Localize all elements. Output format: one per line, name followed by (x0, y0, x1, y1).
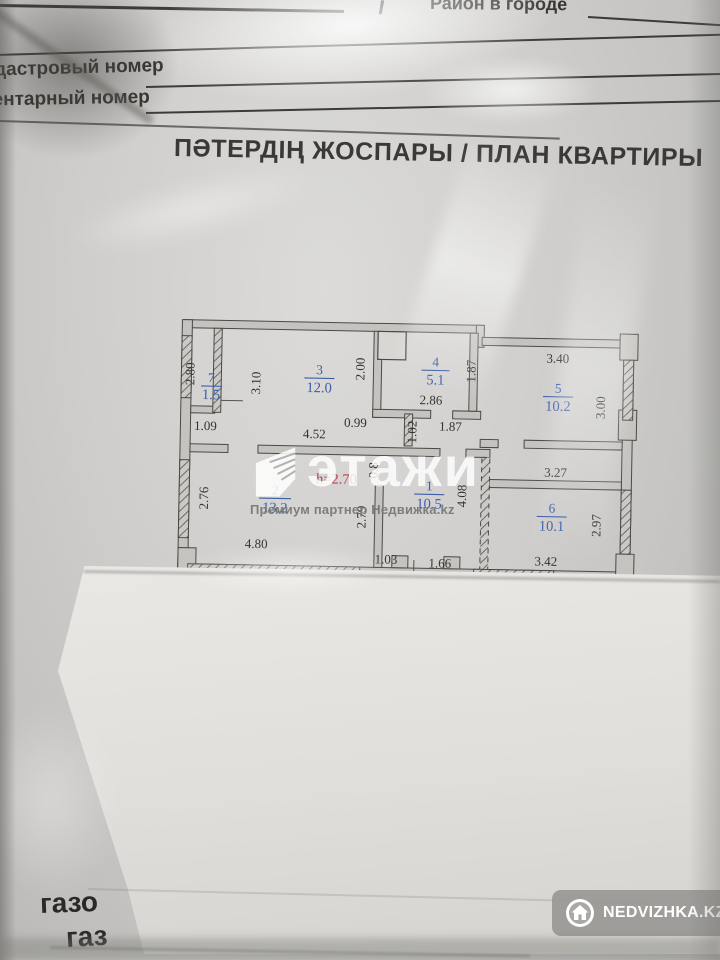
room-5-number: 5 (555, 381, 562, 396)
light-partition-dashed (480, 457, 490, 569)
inventory-field-line (146, 100, 720, 114)
watermark-brand-text: этажи (307, 443, 480, 491)
glare-streak-left (57, 149, 324, 270)
inventory-field-label: инвентарный номер (0, 87, 150, 112)
house-icon (565, 898, 595, 928)
dim-room2-width: 4.80 (245, 536, 268, 551)
etazhi-logo-icon (250, 443, 301, 499)
dim-room5-right: 3.00 (593, 396, 608, 419)
room-4-area: 5.1 (426, 372, 444, 388)
vent-shaft (378, 331, 407, 360)
dim-room7-width: 1.09 (194, 418, 217, 433)
room-6-number: 6 (548, 501, 555, 516)
room-3-number: 3 (316, 362, 323, 377)
room-7-number: 7 (208, 370, 215, 385)
dim-bottom-103: 1.03 (374, 551, 397, 566)
watermark-subtitle: Премиум партнер Недвижка.kz (250, 502, 480, 517)
etazhi-watermark: этажи Премиум партнер Недвижка.kz (250, 443, 480, 517)
district-field-label: Район в городе (430, 0, 567, 15)
dim-opening-099: 0.99 (344, 415, 367, 430)
badge-label: NEDVIZHKA.KZ (603, 904, 720, 922)
room-6-area: 10.1 (539, 518, 565, 534)
form-rule-top-tick (379, 0, 384, 14)
gas-form-text-line2: газ (65, 920, 108, 954)
district-field-line (588, 16, 720, 27)
room-5-area: 10.2 (545, 399, 571, 415)
dim-room4-height: 1.87 (463, 359, 478, 383)
dim-room3-left: 3.10 (248, 372, 263, 395)
dim-room7-height: 2.80 (182, 362, 197, 385)
room-7-area: 1.5 (202, 387, 220, 403)
dim-room2-left: 2.76 (196, 486, 211, 510)
dim-hall-187: 1.87 (439, 419, 463, 434)
nedvizhka-badge: NEDVIZHKA.KZ (552, 890, 720, 936)
room-4-number: 4 (432, 354, 439, 369)
dim-room4-width: 2.86 (419, 392, 443, 407)
form-rule-a (0, 33, 720, 56)
cadastral-field-line (146, 73, 720, 88)
dim-room6-width: 3.42 (534, 553, 557, 568)
page-title: ПӘТЕРДІҢ ЖОСПАРЫ / ПЛАН КВАРТИРЫ (174, 134, 704, 173)
dim-room6-right: 2.97 (588, 514, 603, 538)
photo-of-floorplan-document: Район в городе кадастровый номер инвента… (0, 0, 720, 960)
gas-form-text-line1: газо (39, 886, 98, 920)
glare-top (133, 0, 566, 122)
dim-room6-hall-top: 3.27 (544, 465, 568, 480)
shadow-left-edge (0, 0, 16, 960)
dim-room3-right: 2.00 (352, 358, 367, 381)
dim-bottom-166: 1.66 (428, 555, 452, 570)
room-3-area: 12.0 (306, 380, 332, 396)
glare-spot (420, 55, 600, 125)
form-rule-top (0, 4, 344, 13)
dim-room5-top: 3.40 (546, 351, 569, 366)
cadastral-field-label: кадастровый номер (0, 55, 164, 82)
